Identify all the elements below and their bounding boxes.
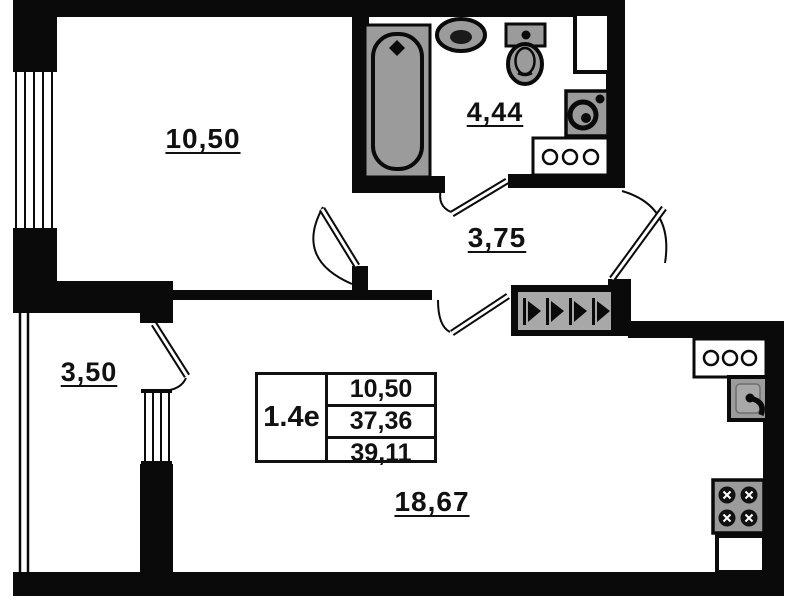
bath-bottom-wall-left [352, 176, 445, 193]
kitchen-counter [694, 339, 766, 377]
unit-info-table: 1.4е 10,50 37,36 39,11 [255, 372, 437, 463]
bedroom-window [16, 72, 52, 228]
apartment-area-value: 37,36 [328, 407, 434, 439]
kitchen-cabinet [717, 536, 764, 572]
apartment-floorplan: 10,50 4,44 3,75 3,50 18,67 1.4е 10,50 37… [0, 0, 799, 600]
bathroom-counter [533, 138, 608, 175]
balcony-area-label: 3,50 [46, 357, 132, 388]
bathroom-area-label: 4,44 [453, 97, 537, 128]
top-wall [13, 0, 625, 17]
kitchen-sink [729, 377, 767, 420]
kitchen-top-wall [628, 321, 784, 338]
bedroom-door [313, 207, 357, 284]
bedroom-area-label: 10,50 [158, 123, 248, 155]
balcony-glazing [20, 313, 28, 572]
vent-shaft [575, 14, 609, 72]
living-area-value: 10,50 [328, 375, 434, 407]
balcony-window [141, 389, 172, 466]
hall-living-door [438, 296, 508, 333]
washing-machine [566, 91, 608, 136]
stove [713, 480, 764, 533]
balcony-door-pillar [140, 281, 173, 323]
hall-living-thin-wall [173, 290, 432, 300]
hallway-area-label: 3,75 [452, 222, 542, 254]
bedroom-door-stub [352, 266, 368, 300]
kitchen-living-area-label: 18,67 [384, 486, 480, 518]
left-wall-mid [13, 228, 57, 313]
bathtub [365, 25, 430, 177]
entrance-door [612, 191, 666, 279]
unit-id-label: 1.4е [258, 375, 328, 460]
toilet [506, 24, 545, 84]
wardrobe [511, 285, 631, 336]
balcony-door [154, 324, 187, 391]
washbasin [437, 19, 485, 51]
bathroom-door [440, 181, 507, 214]
balcony-window-pillar [140, 464, 173, 572]
bottom-wall [13, 572, 784, 596]
left-wall-top [13, 0, 57, 72]
total-area-value: 39,11 [328, 439, 434, 468]
